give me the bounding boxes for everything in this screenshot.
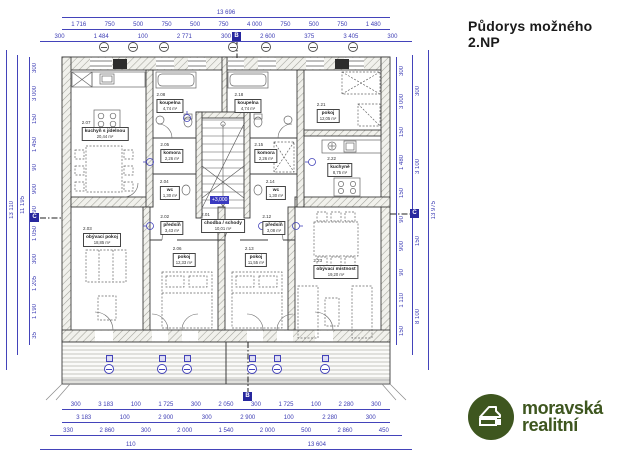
stair-wall-right [244,112,250,218]
window-marker-icon [308,42,318,52]
dim-row-bottom-total: 11013 604 [40,440,412,450]
staircase [202,120,244,208]
coffee-table [325,298,339,326]
balcony-door-mark-icon [322,355,329,362]
wc-left-toilet [182,185,190,195]
balcony-marker-icon [272,364,282,374]
chimney-block-right [335,59,349,69]
dim-row-top-total: 13 696 [62,8,390,18]
wall-mid-right [295,197,390,207]
window-marker-icon [128,42,138,52]
bed-1 [162,272,212,328]
page-title: Půdorys možného 2.NP [468,18,624,50]
bathtub-left [156,72,196,88]
balcony-door-mark-icon [159,355,166,362]
balcony-door-mark-icon [184,355,191,362]
room-label-obyvaci-pokoj: 2.03 obývací pokoj18,85 m² [83,226,121,249]
room-label-kuchyne-right: 2.22 kuchyně8,75 m² [327,156,352,179]
room-label-koupelna-right: 2.18 koupelna4,74 m² [234,92,261,115]
stair-wall-left [196,112,202,218]
company-logo: moravská realitní [468,394,603,440]
room-label-komora-right: 2.15 komora2,26 m² [254,142,277,165]
balcony-marker-icon [247,364,257,374]
dim-row-bottom-3: 3302 8603002 0001 5402 0005002 860450 [50,426,402,436]
sink-left [156,116,164,124]
section-marker-c-right: C [410,209,419,218]
toilet-right [254,117,262,127]
room-label-predsin-right: 2.12 předsíň3,08 m² [262,214,285,237]
room-label-koupelna-left: 2.08 koupelna4,74 m² [156,92,183,115]
wall-between-baths [222,57,227,112]
balcony-marker-icon [104,364,114,374]
wall-bath-right [297,70,304,207]
dim-row-bottom-2: 3 1831002 9003002 9001002 280300 [62,413,390,423]
dim-col-right-total: 13 975 [428,50,438,370]
window-marker-icon [99,42,109,52]
sink-right [284,116,292,124]
room-label-obyvaci-mistnost: 2.23 obývací místnost19,20 m² [313,258,358,281]
wall-left [62,57,71,342]
section-marker-c-left: C [30,213,39,222]
balcony-door-mark-icon [274,355,281,362]
bed-2 [232,272,282,328]
dim-col-left: 3003 0001501 45090900901 0503001 2051 19… [29,57,39,345]
balcony [46,342,406,400]
bathtub-right [228,72,268,88]
room-label-wc-right: 2.14 wc1,30 m² [266,179,286,202]
dim-col-right-inner: 3003 1001508 100 [412,55,422,355]
window-marker-icon [348,42,358,52]
room-label-wc-left: 2.04 wc1,30 m² [160,179,180,202]
wall-kitchen-bath [146,70,153,207]
stove-right-icon [334,178,360,196]
balcony-marker-icon [182,364,192,374]
dim-col-left-inner: 11 195 [17,55,27,355]
room-label-pokoj-top-right: 2.21 pokoj12,05 m² [317,102,340,125]
dim-row-top-2: 1 7167505007505007504 0007505007501 480 [62,20,390,30]
wall-pokoj-kuchyne [304,130,381,136]
room-label-predsin-left: 2.02 předsíň3,43 m² [160,214,183,237]
section-marker-b-bottom: B [243,392,252,401]
balcony-marker-icon [157,364,167,374]
balcony-marker-icon [320,364,330,374]
eave-lines [46,384,406,400]
dim-col-left-total: 13 110 [6,50,16,370]
living-left-furniture [86,250,126,320]
wc-right-toilet [254,185,262,195]
room-label-komora-left: 2.05 komora2,26 m² [160,142,183,165]
wall-mid-left [71,197,153,207]
dining-set-left [75,146,133,192]
chimney-block-left [113,59,127,69]
section-marker-b-top: B [232,32,241,41]
logo-text-line2: realitní [522,417,603,434]
level-marker: +3,000 [210,196,229,204]
room-label-pokoj-lower-left: 2.06 pokoj12,33 m² [173,246,196,269]
logo-house-icon [468,394,514,440]
dim-row-bottom-1: 3003 1831001 7253002 0503001 7251002 280… [62,400,390,410]
pokoj-top-right-furniture [342,72,380,126]
dim-row-top-3: 3001 4841002 7713002 6003753 405300 [40,32,412,42]
room-label-chodba-schody: 2.01 chodba / schody10,01 m² [201,212,245,235]
window-marker-icon [228,42,238,52]
balcony-door-mark-icon [249,355,256,362]
balcony-door-mark-icon [106,355,113,362]
room-label-pokoj-lower-right: 2.13 pokoj11,55 m² [245,246,267,269]
dim-col-right: 3003 0001501 48015090900901 110150 [396,57,406,345]
wall-lower-3 [288,207,295,330]
floor-plan-page: Půdorys možného 2.NP +3,000 B B C C 2.07… [0,0,624,468]
window-marker-icon [159,42,169,52]
window-marker-icon [261,42,271,52]
room-label-kuchyn-s-jidelnou: 2.07 kuchyň s jídelnou20,44 m² [82,120,129,143]
